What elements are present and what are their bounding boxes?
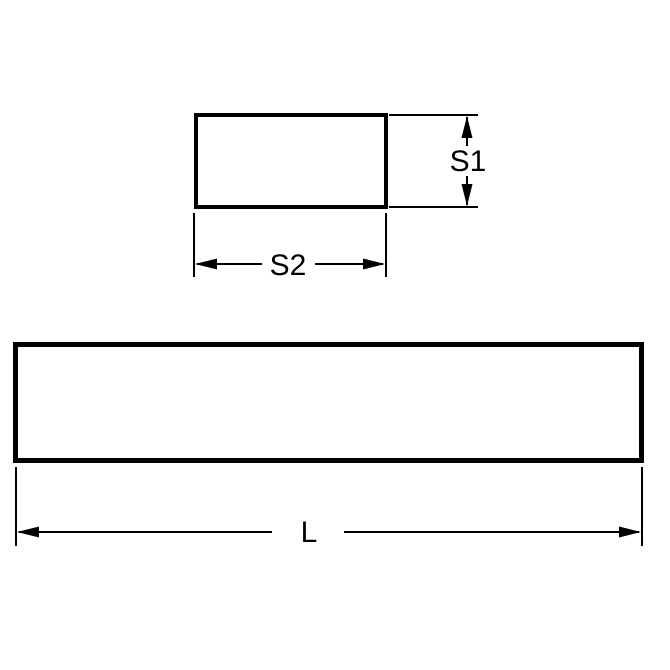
s1-label: S1	[450, 145, 487, 178]
side-view-rect	[16, 345, 642, 461]
cross-section-rect	[196, 115, 386, 207]
dimension-s2: S2	[194, 213, 386, 282]
arrow-left-icon	[195, 259, 217, 270]
dimension-s1: S1	[389, 115, 486, 207]
drawing-canvas: S1 S2 L	[0, 0, 670, 670]
arrow-right-icon	[619, 527, 641, 538]
cross-section-view: S1 S2	[194, 115, 486, 282]
technical-drawing: S1 S2 L	[0, 0, 670, 670]
arrow-up-icon	[462, 116, 473, 138]
arrow-left-icon	[17, 527, 39, 538]
l-label: L	[301, 516, 318, 549]
side-view: L	[16, 345, 643, 550]
s2-label: S2	[270, 249, 307, 282]
dimension-l: L	[16, 467, 642, 549]
arrow-down-icon	[462, 184, 473, 206]
arrow-right-icon	[363, 259, 385, 270]
